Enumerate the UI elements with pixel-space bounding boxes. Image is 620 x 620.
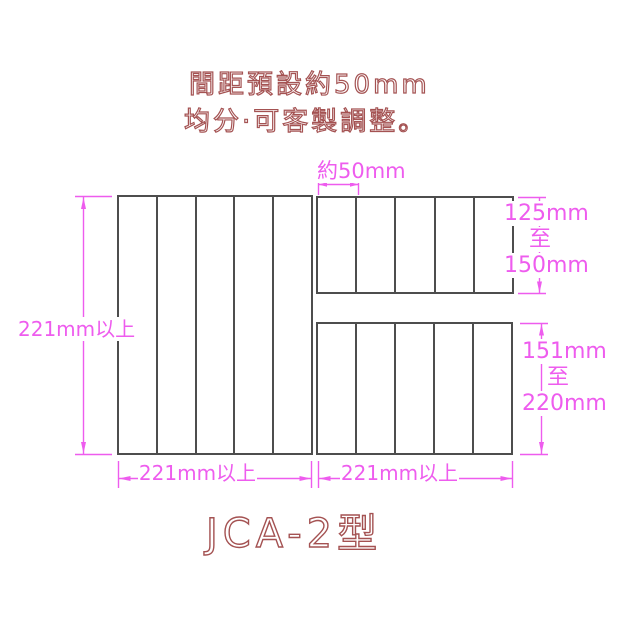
slat	[357, 324, 396, 453]
bottom-right-panel	[316, 322, 513, 455]
slat	[235, 197, 274, 453]
spacing-dimension-text: 約50mm	[316, 159, 407, 183]
drawing-title: JCA-2型	[206, 501, 382, 559]
right-bottom-height-to: 220mm	[521, 391, 608, 416]
right-bottom-height-connector: 至	[546, 365, 570, 390]
right-top-height-from: 125mm	[503, 201, 590, 226]
right-top-height-to: 150mm	[503, 253, 590, 278]
left-panel	[117, 195, 313, 455]
slat	[396, 198, 435, 292]
slat	[158, 197, 197, 453]
slat	[318, 198, 357, 292]
right-top-height-dimension-label: 125mm 至 150mm	[503, 201, 577, 279]
left-height-dimension-text: 221mm以上	[17, 317, 136, 341]
left-height-dimension-label: 221mm以上	[17, 313, 136, 342]
right-bottom-height-from: 151mm	[521, 339, 608, 364]
slat	[357, 198, 396, 292]
slat	[436, 198, 475, 292]
slat	[274, 197, 311, 453]
slat	[474, 324, 511, 453]
note-line-2: 均分·可客製調整。	[184, 101, 427, 138]
slat	[396, 324, 435, 453]
right-bottom-height-dimension-label: 151mm 至 220mm	[521, 339, 595, 417]
technical-drawing: 間距預設約50mm 均分·可客製調整。	[0, 0, 620, 620]
top-right-panel	[316, 196, 514, 294]
slat	[197, 197, 236, 453]
left-width-dimension-text: 221mm以上	[138, 461, 257, 485]
slat	[318, 324, 357, 453]
right-width-dimension-text: 221mm以上	[340, 461, 459, 485]
right-width-dimension-label: 221mm以上	[302, 457, 497, 486]
slat	[435, 324, 474, 453]
note-line-1: 間距預設約50mm	[189, 64, 430, 101]
spacing-dimension-label: 約50mm	[316, 155, 407, 185]
right-top-height-connector: 至	[528, 227, 552, 252]
left-width-dimension-label: 221mm以上	[100, 457, 295, 486]
